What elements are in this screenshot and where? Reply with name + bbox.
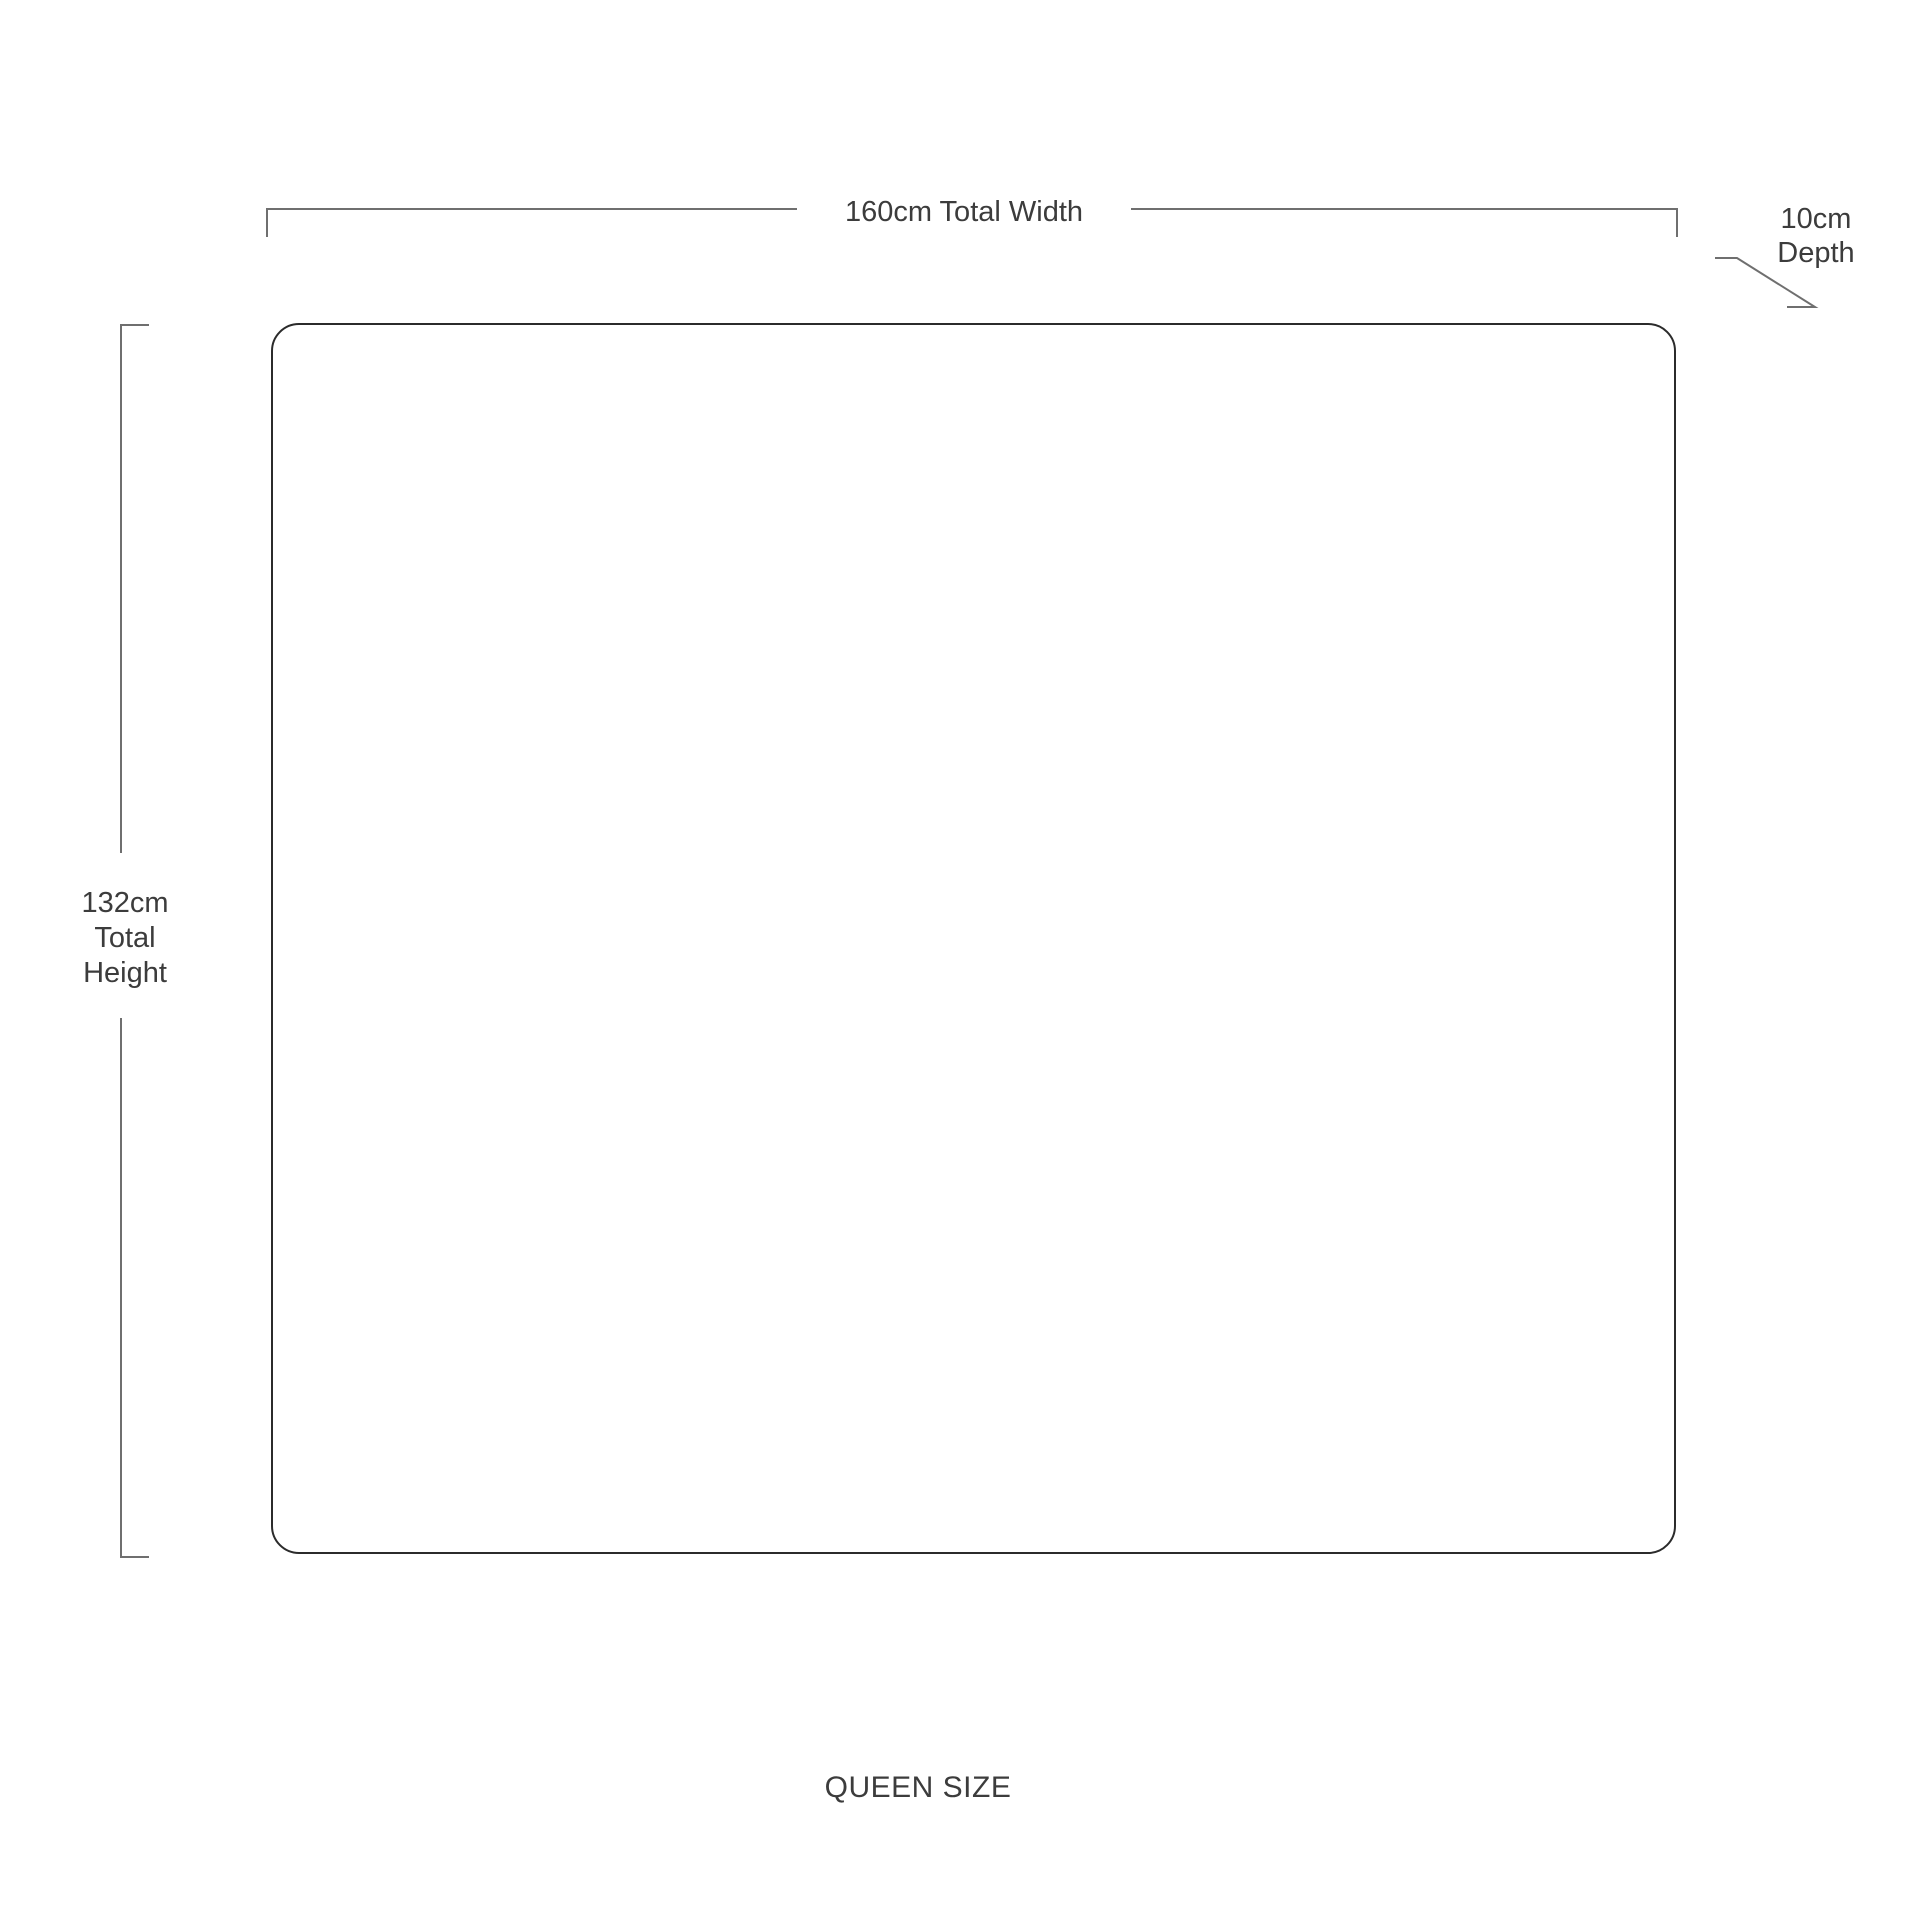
width-dimension-label: 160cm Total Width [845, 194, 1083, 230]
height-dimension-label-line2: Total [81, 921, 168, 956]
width-dimension-line-left [266, 208, 797, 210]
product-outline-rect [271, 323, 1676, 1554]
height-dimension-line-top [120, 324, 122, 853]
height-dimension-line-bottom [120, 1018, 122, 1558]
size-caption: QUEEN SIZE [825, 1771, 1012, 1805]
height-dimension-tick-bottom [120, 1556, 149, 1558]
height-dimension-label-line3: Height [81, 956, 168, 991]
height-dimension-label: 132cm Total Height [81, 886, 168, 991]
depth-dimension-label-line2: Depth [1777, 236, 1854, 270]
depth-dimension-label: 10cm Depth [1777, 202, 1854, 270]
height-dimension-tick-top [120, 324, 149, 326]
depth-dimension-label-line1: 10cm [1777, 202, 1854, 236]
width-dimension-line-right [1131, 208, 1678, 210]
width-dimension-tick-left [266, 208, 268, 237]
height-dimension-label-line1: 132cm [81, 886, 168, 921]
width-dimension-tick-right [1676, 208, 1678, 237]
